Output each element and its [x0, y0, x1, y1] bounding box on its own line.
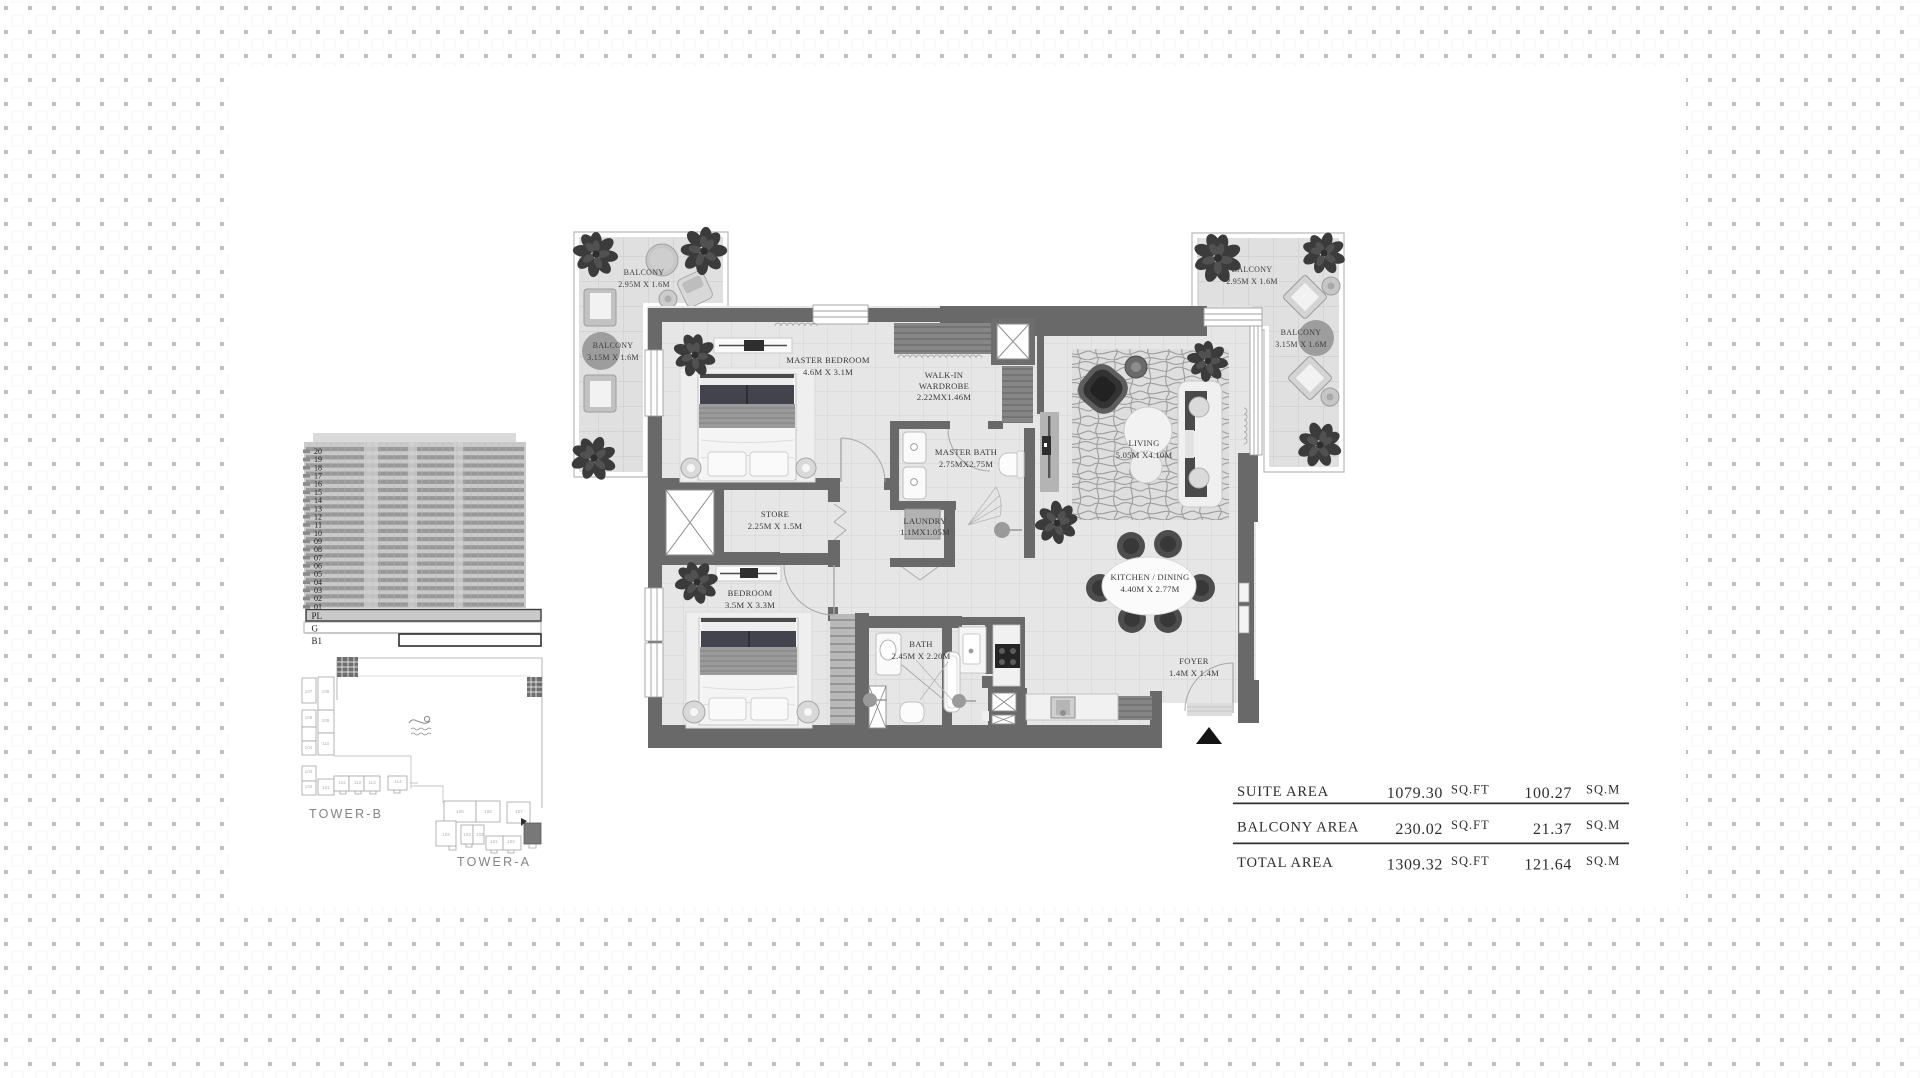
svg-text:108: 108: [322, 689, 330, 694]
svg-text:114: 114: [394, 779, 402, 784]
svg-text:103: 103: [463, 832, 471, 837]
svg-text:SUITE AREA: SUITE AREA: [1237, 784, 1329, 800]
svg-text:TOWER-A: TOWER-A: [457, 855, 531, 869]
svg-text:107: 107: [305, 689, 313, 694]
svg-text:5.05M X4.10M: 5.05M X4.10M: [1116, 450, 1173, 460]
svg-text:105: 105: [456, 809, 464, 814]
svg-text:4.6M X 3.1M: 4.6M X 3.1M: [803, 367, 853, 377]
svg-text:2.45M X 2.20M: 2.45M X 2.20M: [891, 651, 950, 661]
svg-text:PL: PL: [311, 611, 322, 621]
svg-text:1.4M X 1.4M: 1.4M X 1.4M: [1169, 668, 1219, 678]
svg-text:106: 106: [484, 809, 492, 814]
svg-text:FOYER: FOYER: [1179, 656, 1208, 666]
svg-text:4.40M X 2.77M: 4.40M X 2.77M: [1120, 584, 1179, 594]
svg-text:WARDROBE: WARDROBE: [919, 381, 969, 391]
svg-text:104: 104: [442, 832, 450, 837]
svg-text:LAUNDRY: LAUNDRY: [903, 516, 946, 526]
svg-text:2.95M X 1.6M: 2.95M X 1.6M: [1226, 277, 1278, 286]
svg-text:SQ.FT: SQ.FT: [1451, 818, 1490, 832]
svg-text:WALK-IN: WALK-IN: [925, 370, 964, 380]
svg-text:B1: B1: [311, 636, 322, 646]
svg-text:BEDROOM: BEDROOM: [728, 588, 773, 598]
svg-text:STORE: STORE: [761, 509, 789, 519]
svg-text:2.95M X 1.6M: 2.95M X 1.6M: [618, 280, 670, 289]
svg-text:1.1MX1.05M: 1.1MX1.05M: [900, 527, 950, 537]
svg-text:109: 109: [322, 718, 330, 723]
svg-text:G: G: [312, 624, 319, 634]
svg-text:111: 111: [339, 780, 346, 785]
svg-text:112: 112: [354, 780, 362, 785]
svg-text:SQ.FT: SQ.FT: [1451, 854, 1490, 868]
svg-text:113: 113: [368, 780, 376, 785]
svg-text:1309.32: 1309.32: [1387, 857, 1443, 874]
svg-text:BATH: BATH: [909, 639, 932, 649]
svg-text:107: 107: [515, 809, 523, 814]
svg-text:TOWER-B: TOWER-B: [309, 807, 383, 821]
svg-text:104: 104: [507, 839, 515, 844]
svg-text:BALCONY: BALCONY: [1281, 328, 1322, 337]
svg-text:BALCONY: BALCONY: [593, 341, 634, 350]
svg-text:TOTAL AREA: TOTAL AREA: [1237, 855, 1333, 871]
svg-text:110: 110: [322, 741, 330, 746]
svg-text:102: 102: [476, 832, 484, 837]
svg-text:SQ.FT: SQ.FT: [1451, 783, 1490, 797]
svg-text:3.15M X 1.6M: 3.15M X 1.6M: [587, 353, 639, 362]
svg-text:230.02: 230.02: [1395, 821, 1443, 838]
svg-text:BALCONY: BALCONY: [1232, 265, 1273, 274]
svg-text:LIVING: LIVING: [1128, 438, 1159, 448]
svg-text:SQ.M: SQ.M: [1586, 854, 1620, 868]
svg-text:103: 103: [305, 769, 313, 774]
svg-text:KITCHEN / DINING: KITCHEN / DINING: [1111, 572, 1190, 582]
svg-text:106: 106: [305, 715, 313, 720]
svg-text:BALCONY AREA: BALCONY AREA: [1237, 820, 1359, 836]
svg-text:104: 104: [305, 745, 313, 750]
svg-text:1079.30: 1079.30: [1387, 785, 1443, 802]
svg-text:MASTER BEDROOM: MASTER BEDROOM: [786, 355, 870, 365]
svg-text:MASTER BATH: MASTER BATH: [935, 447, 997, 457]
svg-text:101: 101: [322, 785, 330, 790]
svg-text:2.22MX1.46M: 2.22MX1.46M: [917, 392, 971, 402]
svg-text:21.37: 21.37: [1533, 821, 1572, 838]
svg-text:SQ.M: SQ.M: [1586, 818, 1620, 832]
svg-text:101: 101: [490, 839, 498, 844]
svg-text:2.75MX2.75M: 2.75MX2.75M: [939, 459, 993, 469]
svg-text:3.15M X 1.6M: 3.15M X 1.6M: [1275, 340, 1327, 349]
svg-text:2.25M X 1.5M: 2.25M X 1.5M: [748, 521, 803, 531]
svg-text:BALCONY: BALCONY: [624, 268, 665, 277]
svg-text:121.64: 121.64: [1524, 857, 1572, 874]
svg-text:102: 102: [305, 784, 313, 789]
svg-text:100.27: 100.27: [1524, 785, 1572, 802]
svg-text:SQ.M: SQ.M: [1586, 783, 1620, 797]
svg-text:3.5M X 3.3M: 3.5M X 3.3M: [725, 600, 775, 610]
